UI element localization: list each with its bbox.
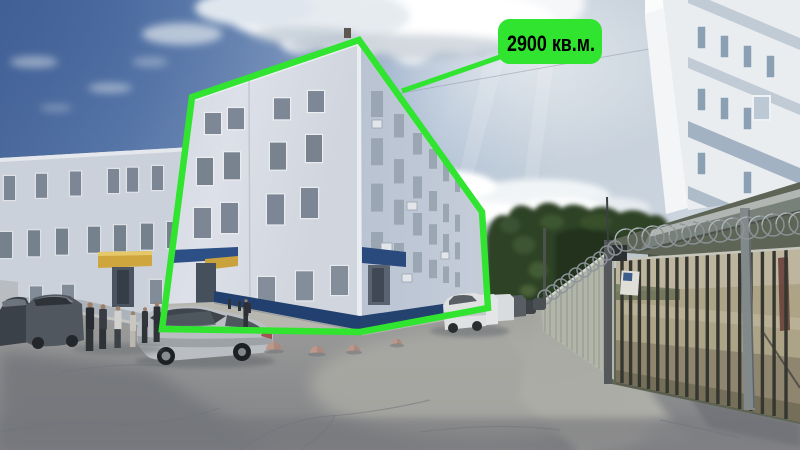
svg-text:2900 кв.м.: 2900 кв.м.	[507, 31, 595, 56]
